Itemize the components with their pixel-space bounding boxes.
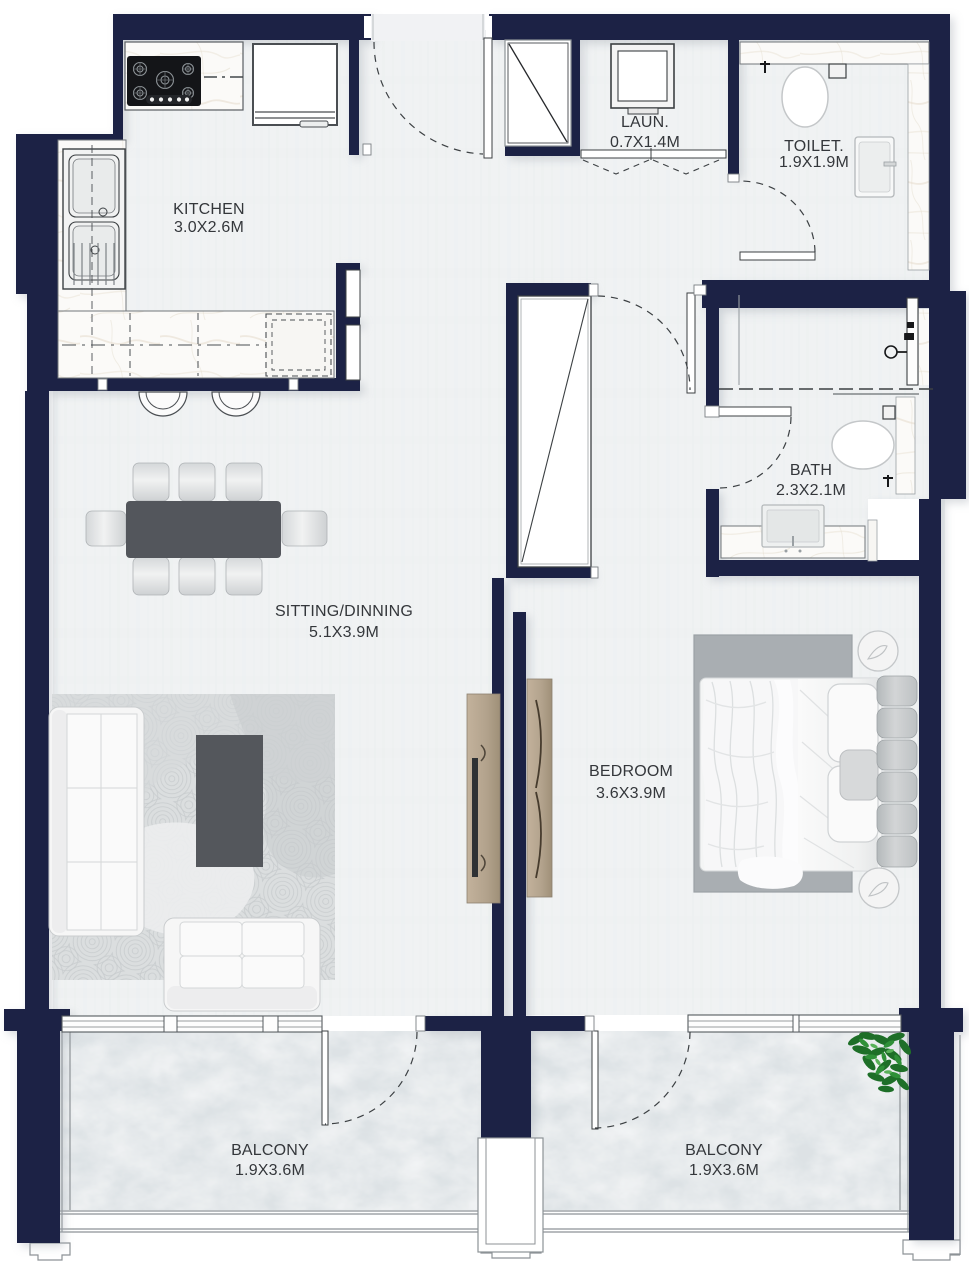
svg-text:3.6X3.9M: 3.6X3.9M [596, 785, 666, 802]
svg-text:LAUN.: LAUN. [621, 114, 669, 131]
svg-text:BATH: BATH [790, 462, 832, 479]
svg-text:1.9X3.6M: 1.9X3.6M [235, 1162, 305, 1179]
svg-text:BALCONY: BALCONY [231, 1142, 309, 1159]
svg-text:TOILET.: TOILET. [784, 138, 844, 155]
svg-text:1.9X3.6M: 1.9X3.6M [689, 1162, 759, 1179]
svg-text:0.7X1.4M: 0.7X1.4M [610, 134, 680, 151]
svg-text:SITTING/DINNING: SITTING/DINNING [275, 603, 413, 620]
svg-text:5.1X3.9M: 5.1X3.9M [309, 624, 379, 641]
svg-text:3.0X2.6M: 3.0X2.6M [174, 219, 244, 236]
svg-text:KITCHEN: KITCHEN [173, 201, 245, 218]
svg-text:BALCONY: BALCONY [685, 1142, 763, 1159]
svg-text:BEDROOM: BEDROOM [589, 763, 673, 780]
svg-text:1.9X1.9M: 1.9X1.9M [779, 154, 849, 171]
svg-text:2.3X2.1M: 2.3X2.1M [776, 482, 846, 499]
